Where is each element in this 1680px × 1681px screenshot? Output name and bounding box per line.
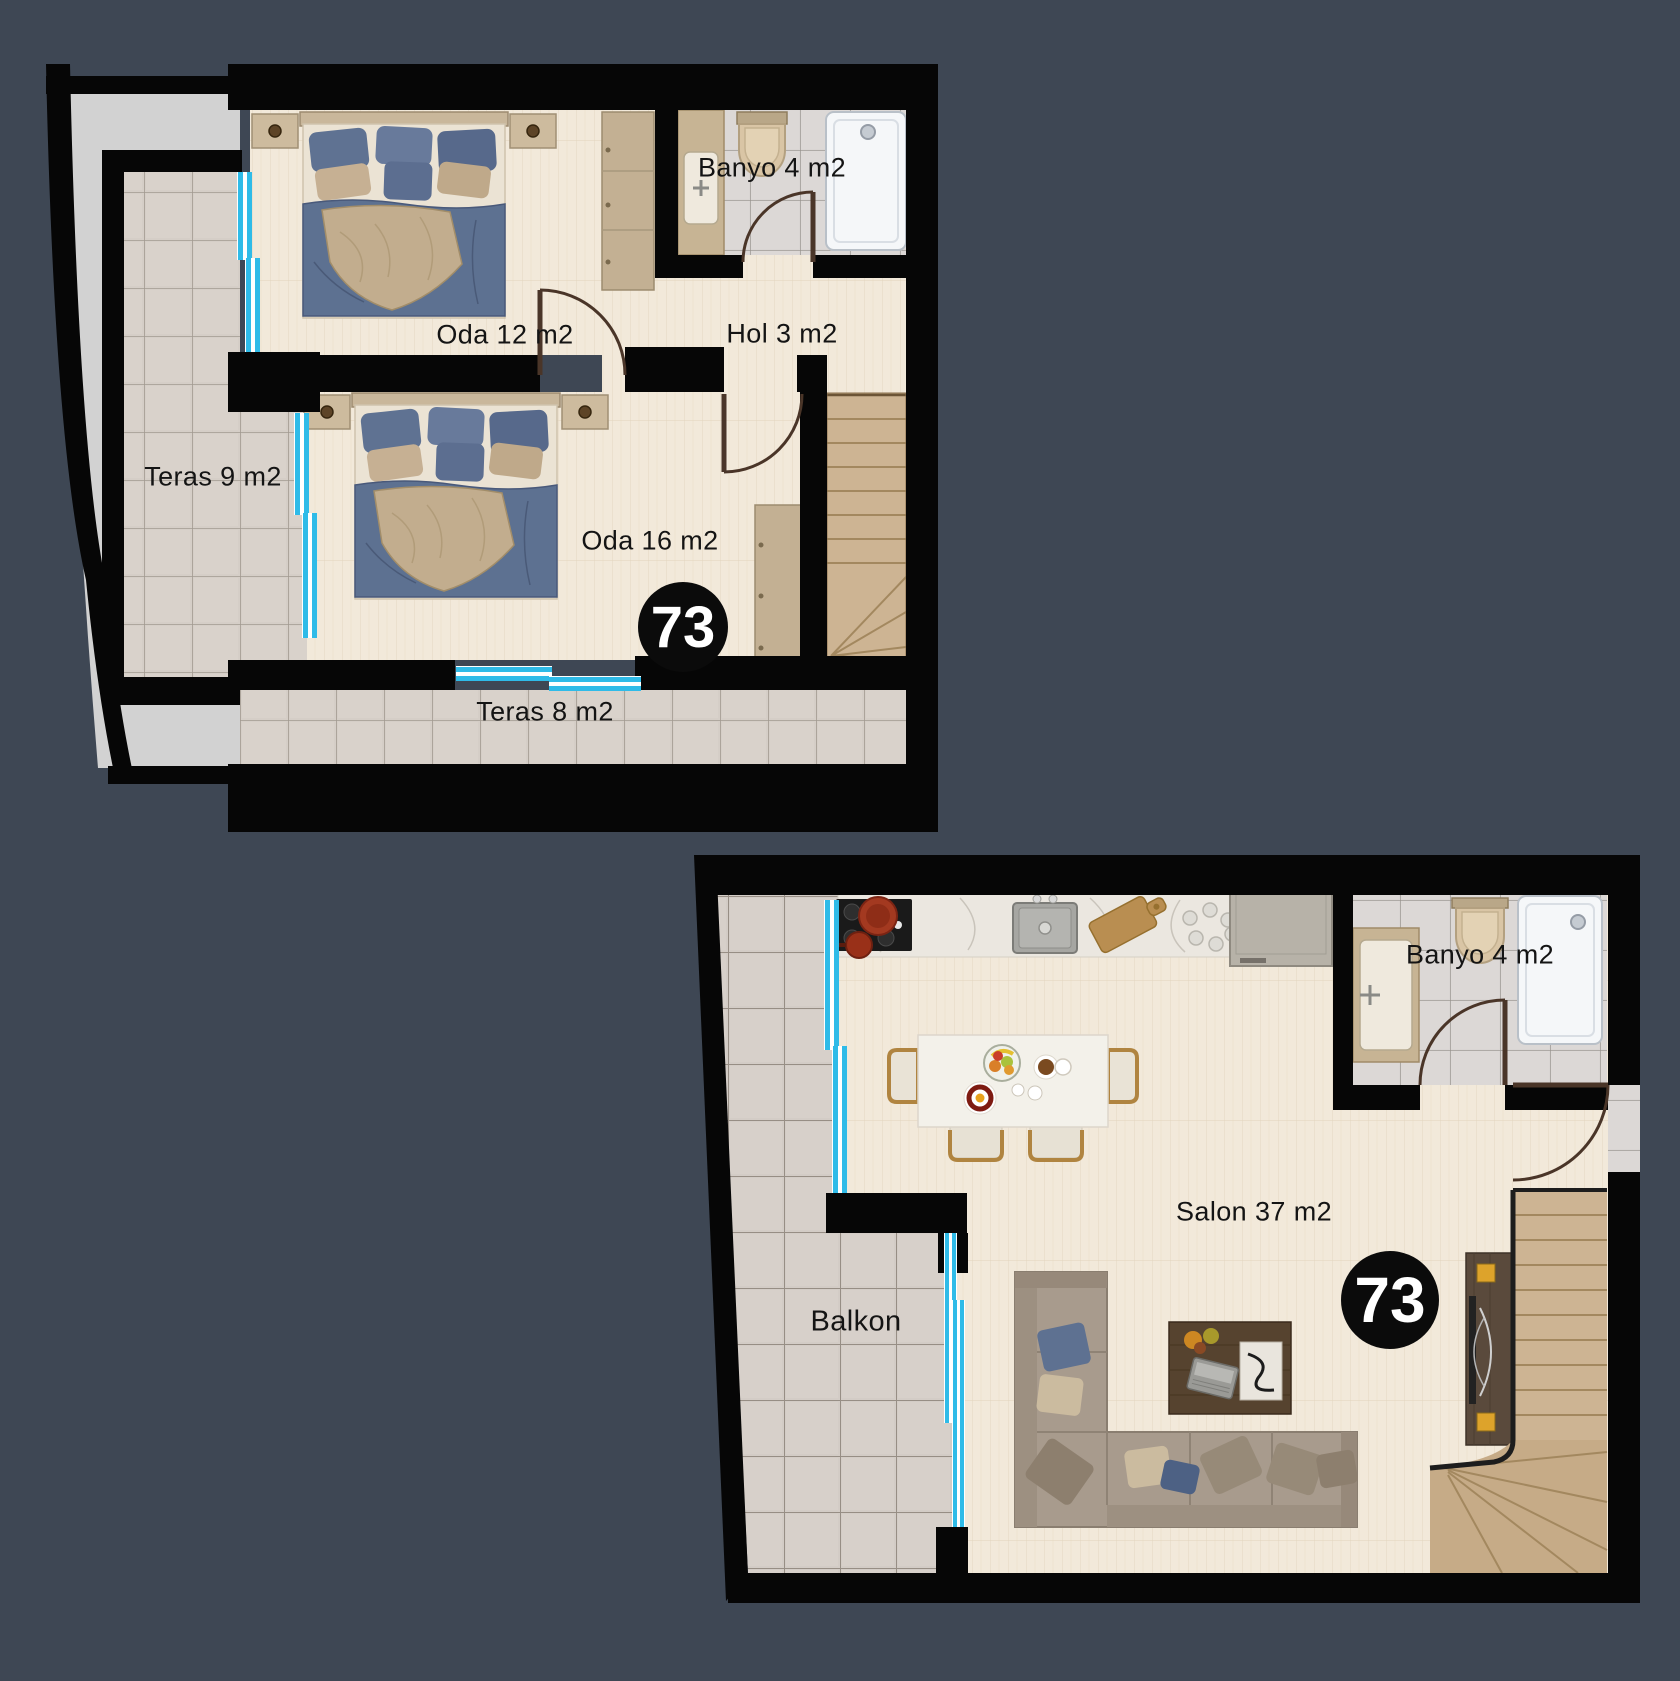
entry-landing-floor	[1608, 1085, 1640, 1172]
tv-unit-icon	[1466, 1253, 1512, 1445]
unit-badge-lower-floor: 73	[1341, 1251, 1439, 1349]
coffee-table-icon	[1169, 1322, 1291, 1414]
stove-icon	[834, 897, 912, 958]
sink-icon-kitchen	[1013, 895, 1077, 953]
room-label-oda-12: Oda 12 m2	[436, 320, 573, 351]
room-label-banyo-upper: Banyo 4 m2	[698, 153, 846, 184]
unit-badge-upper-floor: 73	[638, 582, 728, 672]
room-label-teras-9: Teras 9 m2	[144, 462, 282, 493]
room-label-salon: Salon 37 m2	[1176, 1197, 1332, 1228]
floorplan-canvas: Oda 12 m2 Banyo 4 m2 Hol 3 m2 Teras 9 m2…	[0, 0, 1680, 1681]
room-label-oda-16: Oda 16 m2	[581, 526, 718, 557]
room-label-teras-8: Teras 8 m2	[476, 697, 614, 728]
room-label-banyo-lower: Banyo 4 m2	[1406, 940, 1554, 971]
fridge-icon	[1230, 888, 1332, 966]
floorplan-graphics	[0, 0, 1680, 1681]
stairs-icon-upper	[827, 393, 906, 658]
room-label-hol: Hol 3 m2	[726, 319, 837, 350]
room-label-balkon: Balkon	[810, 1306, 901, 1339]
wardrobe-icon-oda12	[602, 112, 654, 290]
